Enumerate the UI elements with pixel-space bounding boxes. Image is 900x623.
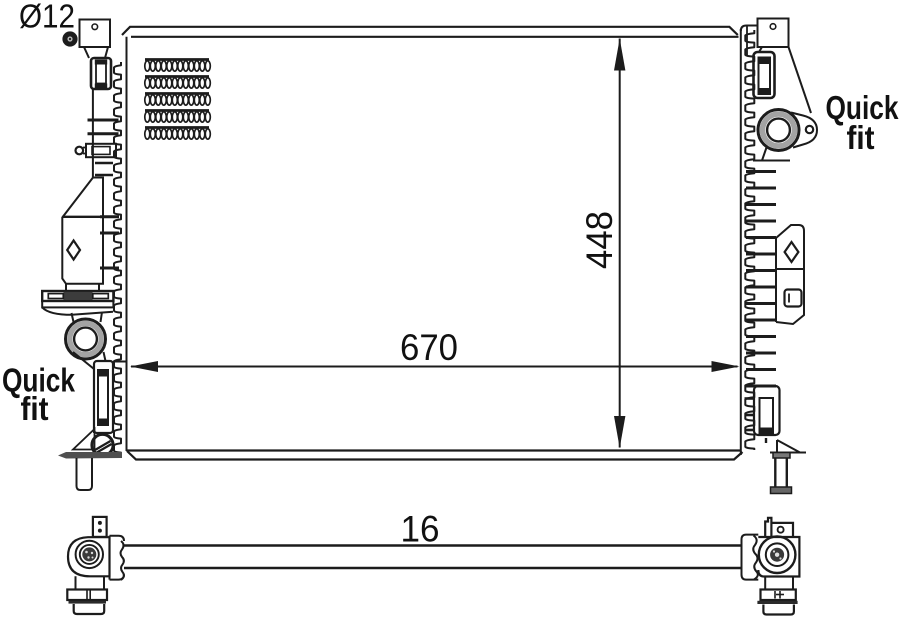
svg-text:670: 670 [400,327,458,368]
svg-text:448: 448 [579,211,620,269]
svg-text:16: 16 [401,509,440,550]
svg-text:fit: fit [21,390,49,427]
svg-text:Ø12: Ø12 [19,0,75,35]
svg-text:fit: fit [847,119,875,156]
